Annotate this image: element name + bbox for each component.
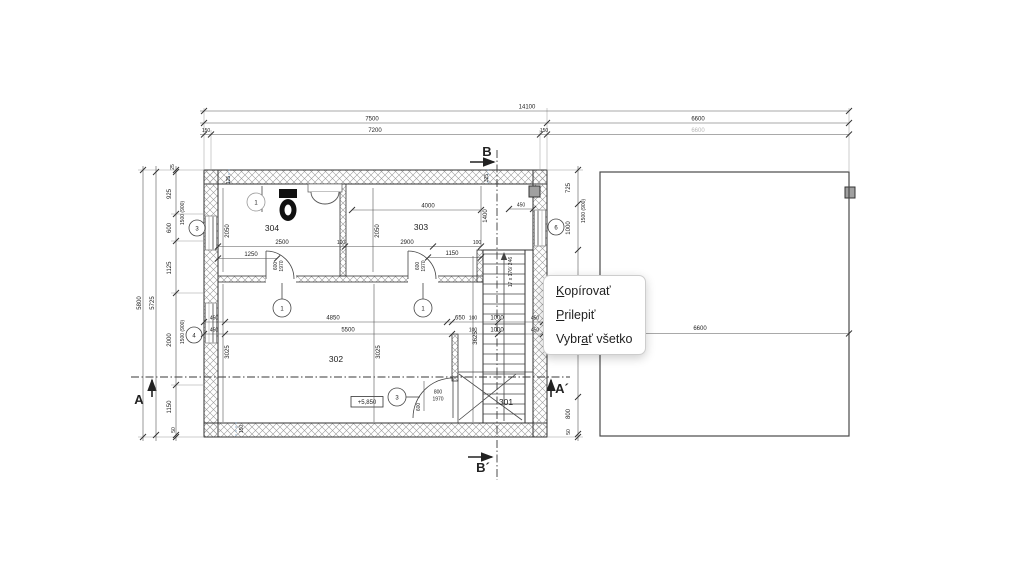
parapet-label: 1500 (900) [180,320,186,345]
stair-direction-arrow [501,252,507,260]
dim-label-faded: 6600 [691,128,705,134]
stair-note: 17 x 176/ 246 [508,257,514,288]
dim-label: 150 [540,128,549,134]
dim-label: 2500 [275,240,289,246]
dim-label: 150 [239,425,245,434]
section-label-b: B [482,144,491,159]
washbasin-top [308,184,342,192]
menu-item-paste[interactable]: Prilepiť [544,303,645,327]
menu-item-copy[interactable]: Kopírovať [544,279,645,303]
door-size: 1970 [432,397,443,403]
dim-label: 1000 [566,221,572,235]
dim-label: 5800 [137,296,143,310]
dim-label: 1000 [490,328,504,334]
dim-label: 150 [202,128,211,134]
dim-label: 5500 [341,328,355,334]
dim-label: 100 [337,240,346,246]
parapet-label: 1500 (900) [581,199,587,224]
dim-chain-left: 5800 5725 25 925 600 1125 2000 1150 50 1… [137,164,204,441]
dim-label: 100 [473,240,482,246]
dim-label: 800 [566,408,572,419]
room-label-302: 302 [329,354,343,364]
dim-chain-top: 14100 7500 6600 150 7200 150 6600 [200,105,852,173]
room-labels: 304 303 302 301 [265,222,513,407]
section-label-b-prime: B´ [476,460,490,475]
dim-label: 50 [171,427,177,433]
dim-label: 1000 [490,316,504,322]
dim-label: 2050 [225,224,231,238]
dim-label: 1250 [244,252,258,258]
dim-label: 450 [531,316,540,322]
floorplan-drawing: 6600 17 x 176/ 246 [0,0,1011,570]
dim-label: 7200 [368,128,382,134]
door-size: 600 [416,403,422,412]
bathroom-fixtures [279,184,342,221]
dim-label: 450 [517,203,526,209]
dim-label: 7500 [365,117,379,123]
room-label-304: 304 [265,223,279,233]
dim-label: 2050 [375,224,381,238]
dim-label: 4000 [421,204,435,210]
dim-label: 450 [531,328,540,334]
dim-label: 1150 [446,251,460,257]
dim-label: 2000 [167,333,173,347]
dim-label: 3025 [225,345,231,359]
room-label-303: 303 [414,222,428,232]
dim-label: 3025 [376,345,382,359]
dim-label: 450 [210,316,219,322]
dim-label: 725 [566,182,572,193]
context-menu: Kopírovať Prilepiť Vybrať všetko [543,275,646,355]
downpipe-marker [845,187,855,198]
dim-label: 450 [210,328,219,334]
chimney-marker [529,186,540,197]
dim-label: 4850 [326,316,340,322]
level-mark: +5,850 [351,397,383,408]
app-canvas: 6600 17 x 176/ 246 [0,0,1011,570]
dim-label: 125 [226,176,232,185]
dim-label: 50 [566,429,572,435]
dim-label: 925 [167,188,173,199]
interior-walls [218,184,483,381]
dim-label: 1150 [167,400,173,414]
dim-label: 6600 [691,117,705,123]
dim-label: 2900 [400,240,414,246]
dim-label: 25 [170,164,176,170]
menu-item-select-all[interactable]: Vybrať všetko [544,327,645,351]
dim-label: 5725 [150,296,156,310]
toilet-tank [279,189,297,198]
dim-label: 600 [167,222,173,233]
dim-label: 6600 [693,326,707,332]
room-label-301: 301 [499,397,513,407]
section-label-a-prime: A´ [555,381,569,396]
dim-label: 1125 [167,261,173,275]
door-size: 800 [434,390,443,396]
door-size: 1970 [421,260,427,271]
dim-label: 325 [484,174,490,183]
door-size: 1970 [279,260,285,271]
washbasin-bowl [311,192,339,204]
dim-label: 14100 [519,105,536,111]
dim-label: 1400 [483,209,489,223]
dim-label: 3625 [473,331,479,345]
dim-label: 650 [455,316,466,322]
parapet-label: 1500 (900) [180,201,186,226]
